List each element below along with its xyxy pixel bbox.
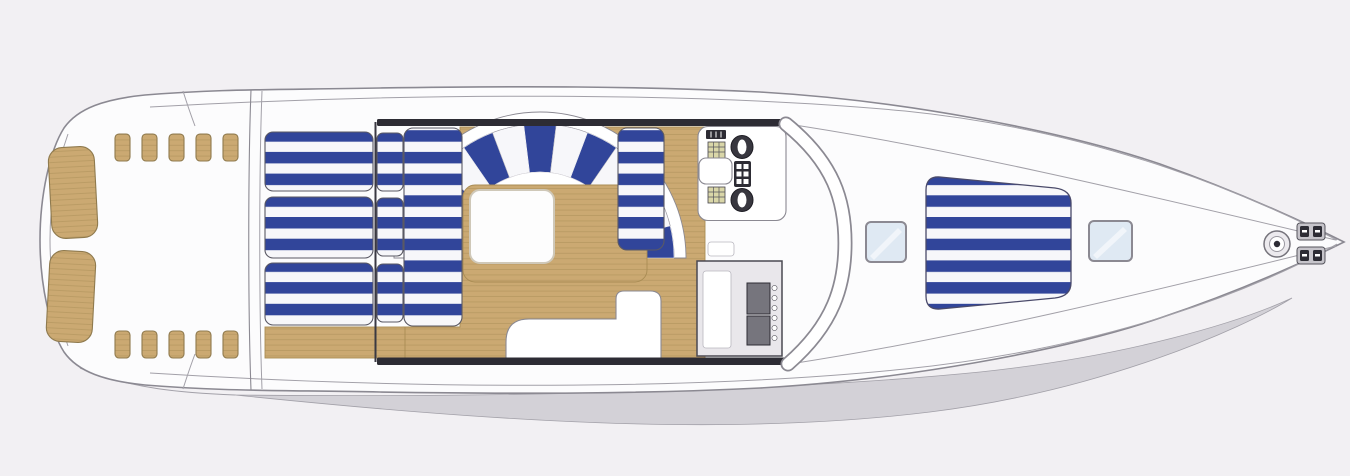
step-pad [169, 331, 184, 358]
bench-arm-left [404, 128, 462, 326]
sun-lounger [265, 197, 373, 258]
mooring-cleat-plate [1297, 247, 1325, 264]
flybridge-edge-bar-top [377, 119, 787, 126]
step-pad [142, 331, 157, 358]
step-pad [169, 134, 184, 161]
swim-platform-panel [46, 250, 97, 343]
lounger-headrest [377, 198, 403, 256]
step-pad [196, 134, 211, 161]
cocktail-table [470, 190, 554, 263]
step-pad [142, 134, 157, 161]
grill-module [747, 316, 770, 345]
sun-lounger [265, 132, 373, 191]
instrument-panel [708, 187, 725, 203]
step-pad [196, 331, 211, 358]
helm-seat-dark [731, 189, 753, 212]
step-pad [223, 134, 238, 161]
flybridge-edge-bar-bottom [377, 358, 790, 366]
anchor-windlass [1264, 231, 1290, 257]
teak-floor-aft-strip [265, 327, 405, 358]
step-pad [223, 331, 238, 358]
step-pad [115, 331, 130, 358]
yacht-deck-plan [0, 0, 1350, 476]
grill-module [747, 283, 770, 314]
helm-seat-dark [731, 136, 753, 159]
helm-step [708, 242, 734, 256]
aft-sun-loungers [265, 132, 403, 325]
helm-seat-white [699, 158, 732, 184]
swim-platform-panel [48, 146, 99, 239]
step-pad [115, 134, 130, 161]
wet-bar [697, 261, 782, 356]
sink-unit [703, 271, 731, 348]
bench-arm-right [618, 128, 664, 250]
mooring-cleat-plate [1297, 223, 1325, 240]
sun-lounger [265, 263, 373, 325]
lounger-headrest [377, 133, 403, 191]
lounger-headrest [377, 264, 403, 322]
instrument-panel [708, 142, 725, 158]
bow-sunpad [926, 177, 1071, 309]
companion-console [734, 161, 751, 187]
